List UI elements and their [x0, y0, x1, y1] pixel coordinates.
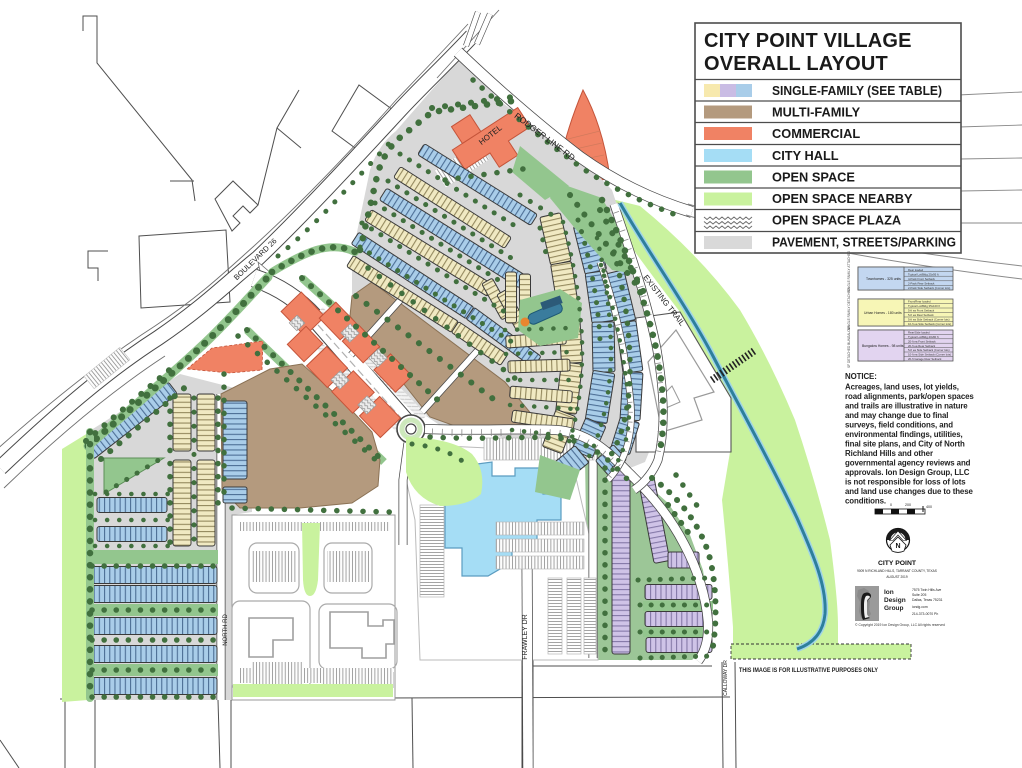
svg-text:Group: Group [884, 605, 904, 612]
svg-text:AUGUST 2019: AUGUST 2019 [886, 575, 907, 579]
svg-text:and land use changes due to th: and land use changes due to these [845, 487, 974, 496]
svg-text:CALLOWAY DR: CALLOWAY DR [723, 660, 729, 696]
svg-text:CITY HALL: CITY HALL [772, 148, 839, 163]
svg-text:OPEN SPACE: OPEN SPACE [772, 170, 855, 185]
svg-text:2-Pack Side Setback (Corner lo: 2-Pack Side Setback (Corner lots) [908, 286, 950, 290]
svg-text:N: N [896, 543, 901, 550]
svg-text:governmental agency reviews an: governmental agency reviews and [845, 459, 971, 468]
svg-text:Typical Lot/Bldg 40x80 ft: Typical Lot/Bldg 40x80 ft [908, 335, 939, 339]
svg-text:214-373-0070 Ph: 214-373-0070 Ph [912, 612, 938, 616]
svg-text:5-ft ea Side Setback (Corner l: 5-ft ea Side Setback (Corner lots) [908, 348, 950, 352]
svg-text:THIS IMAGE IS FOR ILLUSTRATIVE: THIS IMAGE IS FOR ILLUSTRATIVE PURPOSES … [739, 667, 878, 674]
svg-text:PAVEMENT, STREETS/PARKING: PAVEMENT, STREETS/PARKING [772, 235, 956, 250]
svg-text:SINGLE-FAMILY (SEE TABLE): SINGLE-FAMILY (SEE TABLE) [772, 83, 942, 98]
svg-text:Urban Homes - 180 units: Urban Homes - 180 units [864, 311, 902, 315]
svg-text:© Copyright 2019 Ion Design: © Copyright 2019 Ion Design Group, LLC A… [855, 623, 945, 627]
svg-text:5-ft ea Side Setback (Corner l: 5-ft ea Side Setback (Corner lots) [908, 318, 950, 322]
svg-text:SINGLE FAMILY ATTACHED: SINGLE FAMILY ATTACHED [847, 250, 851, 292]
svg-text:400: 400 [926, 505, 932, 509]
svg-text:5-ft ea Rear Setback: 5-ft ea Rear Setback [908, 313, 934, 317]
svg-text:approvals. Ion Design Group, L: approvals. Ion Design Group, LLC [845, 468, 970, 477]
svg-text:is not responsible for loss of: is not responsible for loss of lots [845, 478, 966, 487]
svg-text:0: 0 [890, 503, 892, 507]
svg-text:Typical Lot/Bldg 25x95 ft: Typical Lot/Bldg 25x95 ft [908, 272, 939, 276]
svg-text:Rear loaded: Rear loaded [908, 268, 924, 272]
svg-text:Townhomes - 325 units: Townhomes - 325 units [866, 277, 901, 281]
svg-text:COMMERCIAL: COMMERCIAL [772, 126, 860, 141]
svg-text:SINGLE FAMILY DETACHED: SINGLE FAMILY DETACHED [847, 288, 851, 330]
svg-text:FRAWLEY DR: FRAWLEY DR [522, 614, 529, 660]
svg-text:surveys, field conditions, and: surveys, field conditions, and [845, 421, 953, 430]
svg-text:CITY POINT: CITY POINT [878, 560, 917, 567]
svg-text:Dallas, Texas 75231: Dallas, Texas 75231 [912, 598, 943, 602]
svg-text:Acreages, land uses, lot yield: Acreages, land uses, lot yields, [845, 383, 959, 392]
svg-text:final site plans, and City of: final site plans, and City of North [845, 440, 965, 449]
svg-text:Richland Hills and other: Richland Hills and other [845, 449, 933, 458]
svg-text:MULTI-FAMILY: MULTI-FAMILY [772, 105, 861, 120]
svg-text:environmental findings, utilit: environmental findings, utilities, [845, 430, 963, 439]
svg-text:2-Pack Rear Setback: 2-Pack Rear Setback [908, 282, 935, 286]
svg-text:20-ft ea Rear Setback: 20-ft ea Rear Setback [908, 344, 936, 348]
svg-text:road alignments, park/open spa: road alignments, park/open spaces [845, 392, 974, 401]
svg-text:20-ft Garage Rear Setback: 20-ft Garage Rear Setback [908, 357, 942, 361]
svg-text:iondg.com: iondg.com [912, 605, 928, 609]
svg-text:4-Pack Front Setback: 4-Pack Front Setback [908, 277, 935, 281]
svg-text:20-ft ea Front Setback: 20-ft ea Front Setback [908, 339, 936, 343]
svg-text:Front/Rear loaded: Front/Rear loaded [908, 300, 931, 304]
svg-text:OPEN SPACE NEARBY: OPEN SPACE NEARBY [772, 191, 913, 206]
svg-text:OPEN SPACE PLAZA: OPEN SPACE PLAZA [772, 213, 901, 228]
svg-text:Bungalow Homes - 98 units: Bungalow Homes - 98 units [862, 344, 904, 348]
svg-text:Suite 205: Suite 205 [912, 593, 926, 597]
svg-text:CITY POINT VILLAGE: CITY POINT VILLAGE [704, 30, 912, 52]
svg-text:5-ft ea Front Setback: 5-ft ea Front Setback [908, 309, 935, 313]
svg-text:Rear/Side loaded: Rear/Side loaded [908, 331, 930, 335]
svg-text:NOTICE:: NOTICE: [845, 372, 877, 381]
svg-text:and may change due to final: and may change due to final [845, 411, 948, 420]
svg-text:conditions.: conditions. [845, 497, 886, 506]
svg-text:10-ft ea Side Setback (Corner: 10-ft ea Side Setback (Corner lots) [908, 322, 951, 326]
svg-text:SF DETACHED BUNGALOW: SF DETACHED BUNGALOW [847, 326, 851, 368]
svg-text:Typical Lot/Bldg 35x100 ft: Typical Lot/Bldg 35x100 ft [908, 304, 940, 308]
svg-text:9009 N RICHLAND HILLS, TARRANT: 9009 N RICHLAND HILLS, TARRANT COUNTY, T… [857, 569, 937, 573]
svg-text:and trails are illustrative in: and trails are illustrative in nature [845, 402, 968, 411]
svg-text:OVERALL LAYOUT: OVERALL LAYOUT [704, 53, 888, 75]
svg-text:200: 200 [905, 503, 911, 507]
svg-text:Design: Design [884, 597, 906, 604]
svg-text:10-ft ea Side Setback (Corner: 10-ft ea Side Setback (Corner lots) [908, 353, 951, 357]
svg-text:NORTH RD: NORTH RD [223, 614, 229, 646]
svg-text:7575 Twin Hills Ave: 7575 Twin Hills Ave [912, 588, 941, 592]
svg-text:Ion: Ion [884, 589, 894, 596]
